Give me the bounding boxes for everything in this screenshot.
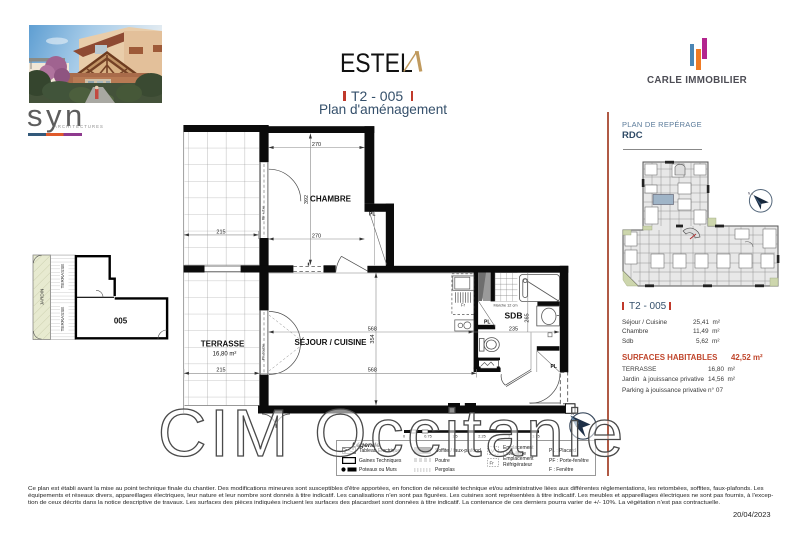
svg-text:N: N	[748, 192, 751, 196]
svg-text:TERRASSE: TERRASSE	[60, 307, 65, 332]
svg-text:PF + fixe: PF + fixe	[262, 206, 266, 220]
svg-text:568: 568	[368, 368, 377, 374]
svg-text:PL: PL	[484, 320, 490, 326]
svg-text:SDB: SDB	[505, 311, 523, 321]
svg-text:354: 354	[370, 334, 376, 343]
svg-text:TERRASSE: TERRASSE	[60, 264, 65, 289]
svg-text:215: 215	[216, 229, 225, 235]
svg-text:TERRASSE: TERRASSE	[201, 340, 245, 349]
svg-text:270: 270	[312, 233, 321, 239]
svg-text:215: 215	[216, 368, 225, 374]
svg-text:Fr: Fr	[461, 303, 466, 308]
svg-text:PF double: PF double	[262, 344, 266, 360]
svg-text:Marche 12 cm: Marche 12 cm	[493, 304, 517, 308]
svg-text:16,80 m²: 16,80 m²	[213, 352, 237, 358]
svg-text:CHAMBRE: CHAMBRE	[310, 195, 352, 204]
svg-text:JARDIN: JARDIN	[40, 289, 45, 306]
svg-text:PL: PL	[369, 212, 375, 218]
svg-text:PL: PL	[551, 364, 557, 370]
svg-text:265: 265	[525, 313, 531, 322]
svg-text:270: 270	[312, 142, 321, 148]
svg-text:005: 005	[114, 317, 128, 326]
svg-text:235: 235	[509, 326, 518, 332]
svg-text:568: 568	[368, 326, 377, 332]
svg-text:SÉJOUR / CUISINE: SÉJOUR / CUISINE	[294, 338, 367, 347]
